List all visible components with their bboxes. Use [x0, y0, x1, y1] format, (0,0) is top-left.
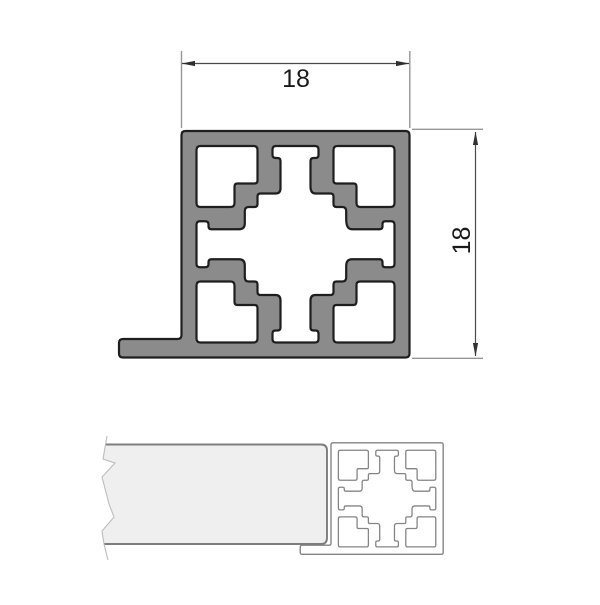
svg-text:18: 18	[448, 227, 476, 255]
svg-text:18: 18	[282, 65, 310, 93]
